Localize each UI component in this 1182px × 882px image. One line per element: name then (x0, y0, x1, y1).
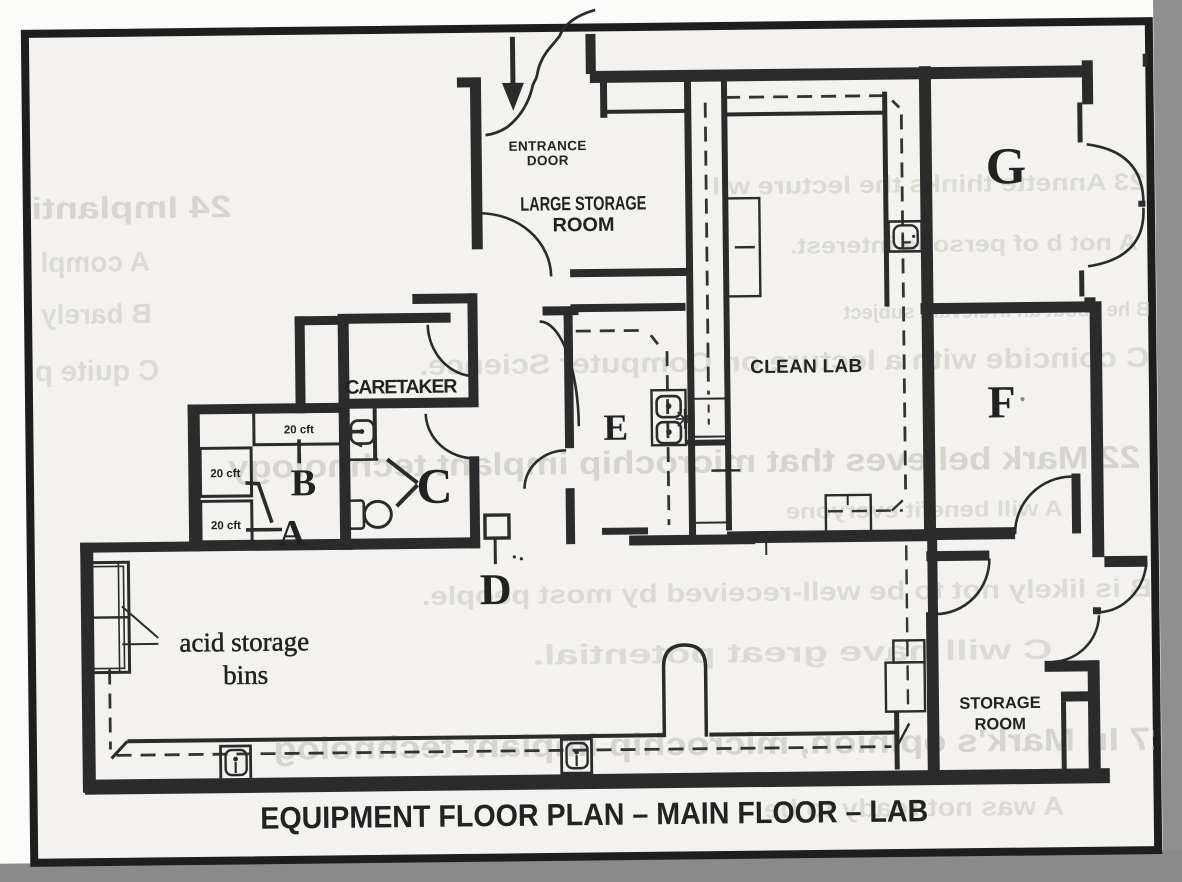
svg-text:CLEAN LAB: CLEAN LAB (750, 356, 862, 378)
svg-text:ENTRANCE: ENTRANCE (508, 138, 586, 154)
svg-text:A: A (278, 513, 305, 554)
svg-text:C quite p: C quite p (35, 355, 159, 388)
svg-text:B: B (291, 462, 317, 504)
svg-text:D: D (480, 565, 512, 614)
svg-text:C: C (416, 458, 453, 514)
svg-text:CARETAKER: CARETAKER (345, 376, 457, 399)
svg-text:G: G (985, 138, 1026, 195)
svg-text:E: E (603, 408, 628, 449)
svg-text:bins: bins (223, 660, 268, 691)
svg-text:LARGE STORAGE: LARGE STORAGE (520, 192, 646, 215)
svg-text:20 cft: 20 cft (284, 424, 314, 436)
svg-text:B barely: B barely (40, 298, 151, 330)
svg-text:A not b of persona interest: A not b of persona interest. (790, 229, 1138, 259)
svg-text:A compl: A compl (40, 246, 150, 278)
svg-text:20 cft: 20 cft (211, 520, 241, 532)
svg-text:20 cft: 20 cft (210, 468, 240, 480)
svg-text:C will have great potential.: C will have great potential. (532, 634, 1052, 671)
svg-text:STORAGE: STORAGE (959, 694, 1040, 713)
svg-text:acid storage: acid storage (179, 626, 309, 657)
svg-text:ROOM: ROOM (552, 214, 614, 237)
svg-text:DOOR: DOOR (527, 153, 569, 168)
svg-text:24 Implanti: 24 Implanti (31, 189, 231, 226)
svg-text:ROOM: ROOM (974, 715, 1026, 734)
svg-text:F: F (987, 376, 1016, 427)
